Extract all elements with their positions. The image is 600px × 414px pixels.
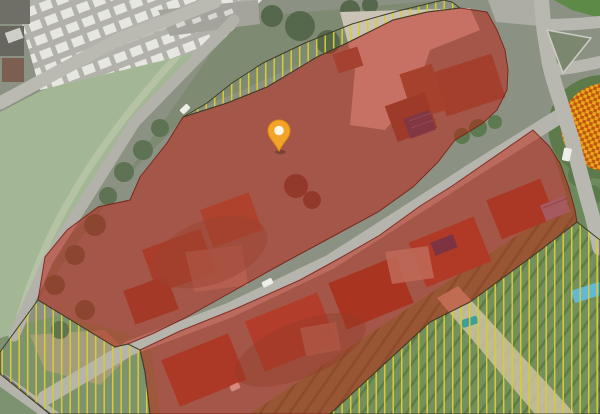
pin-shadow: [275, 150, 286, 154]
satellite-basemap[interactable]: [0, 0, 600, 414]
road-branch-northeast: [545, 22, 600, 25]
pin-inner-dot: [274, 126, 284, 136]
map-viewport[interactable]: [0, 0, 600, 414]
